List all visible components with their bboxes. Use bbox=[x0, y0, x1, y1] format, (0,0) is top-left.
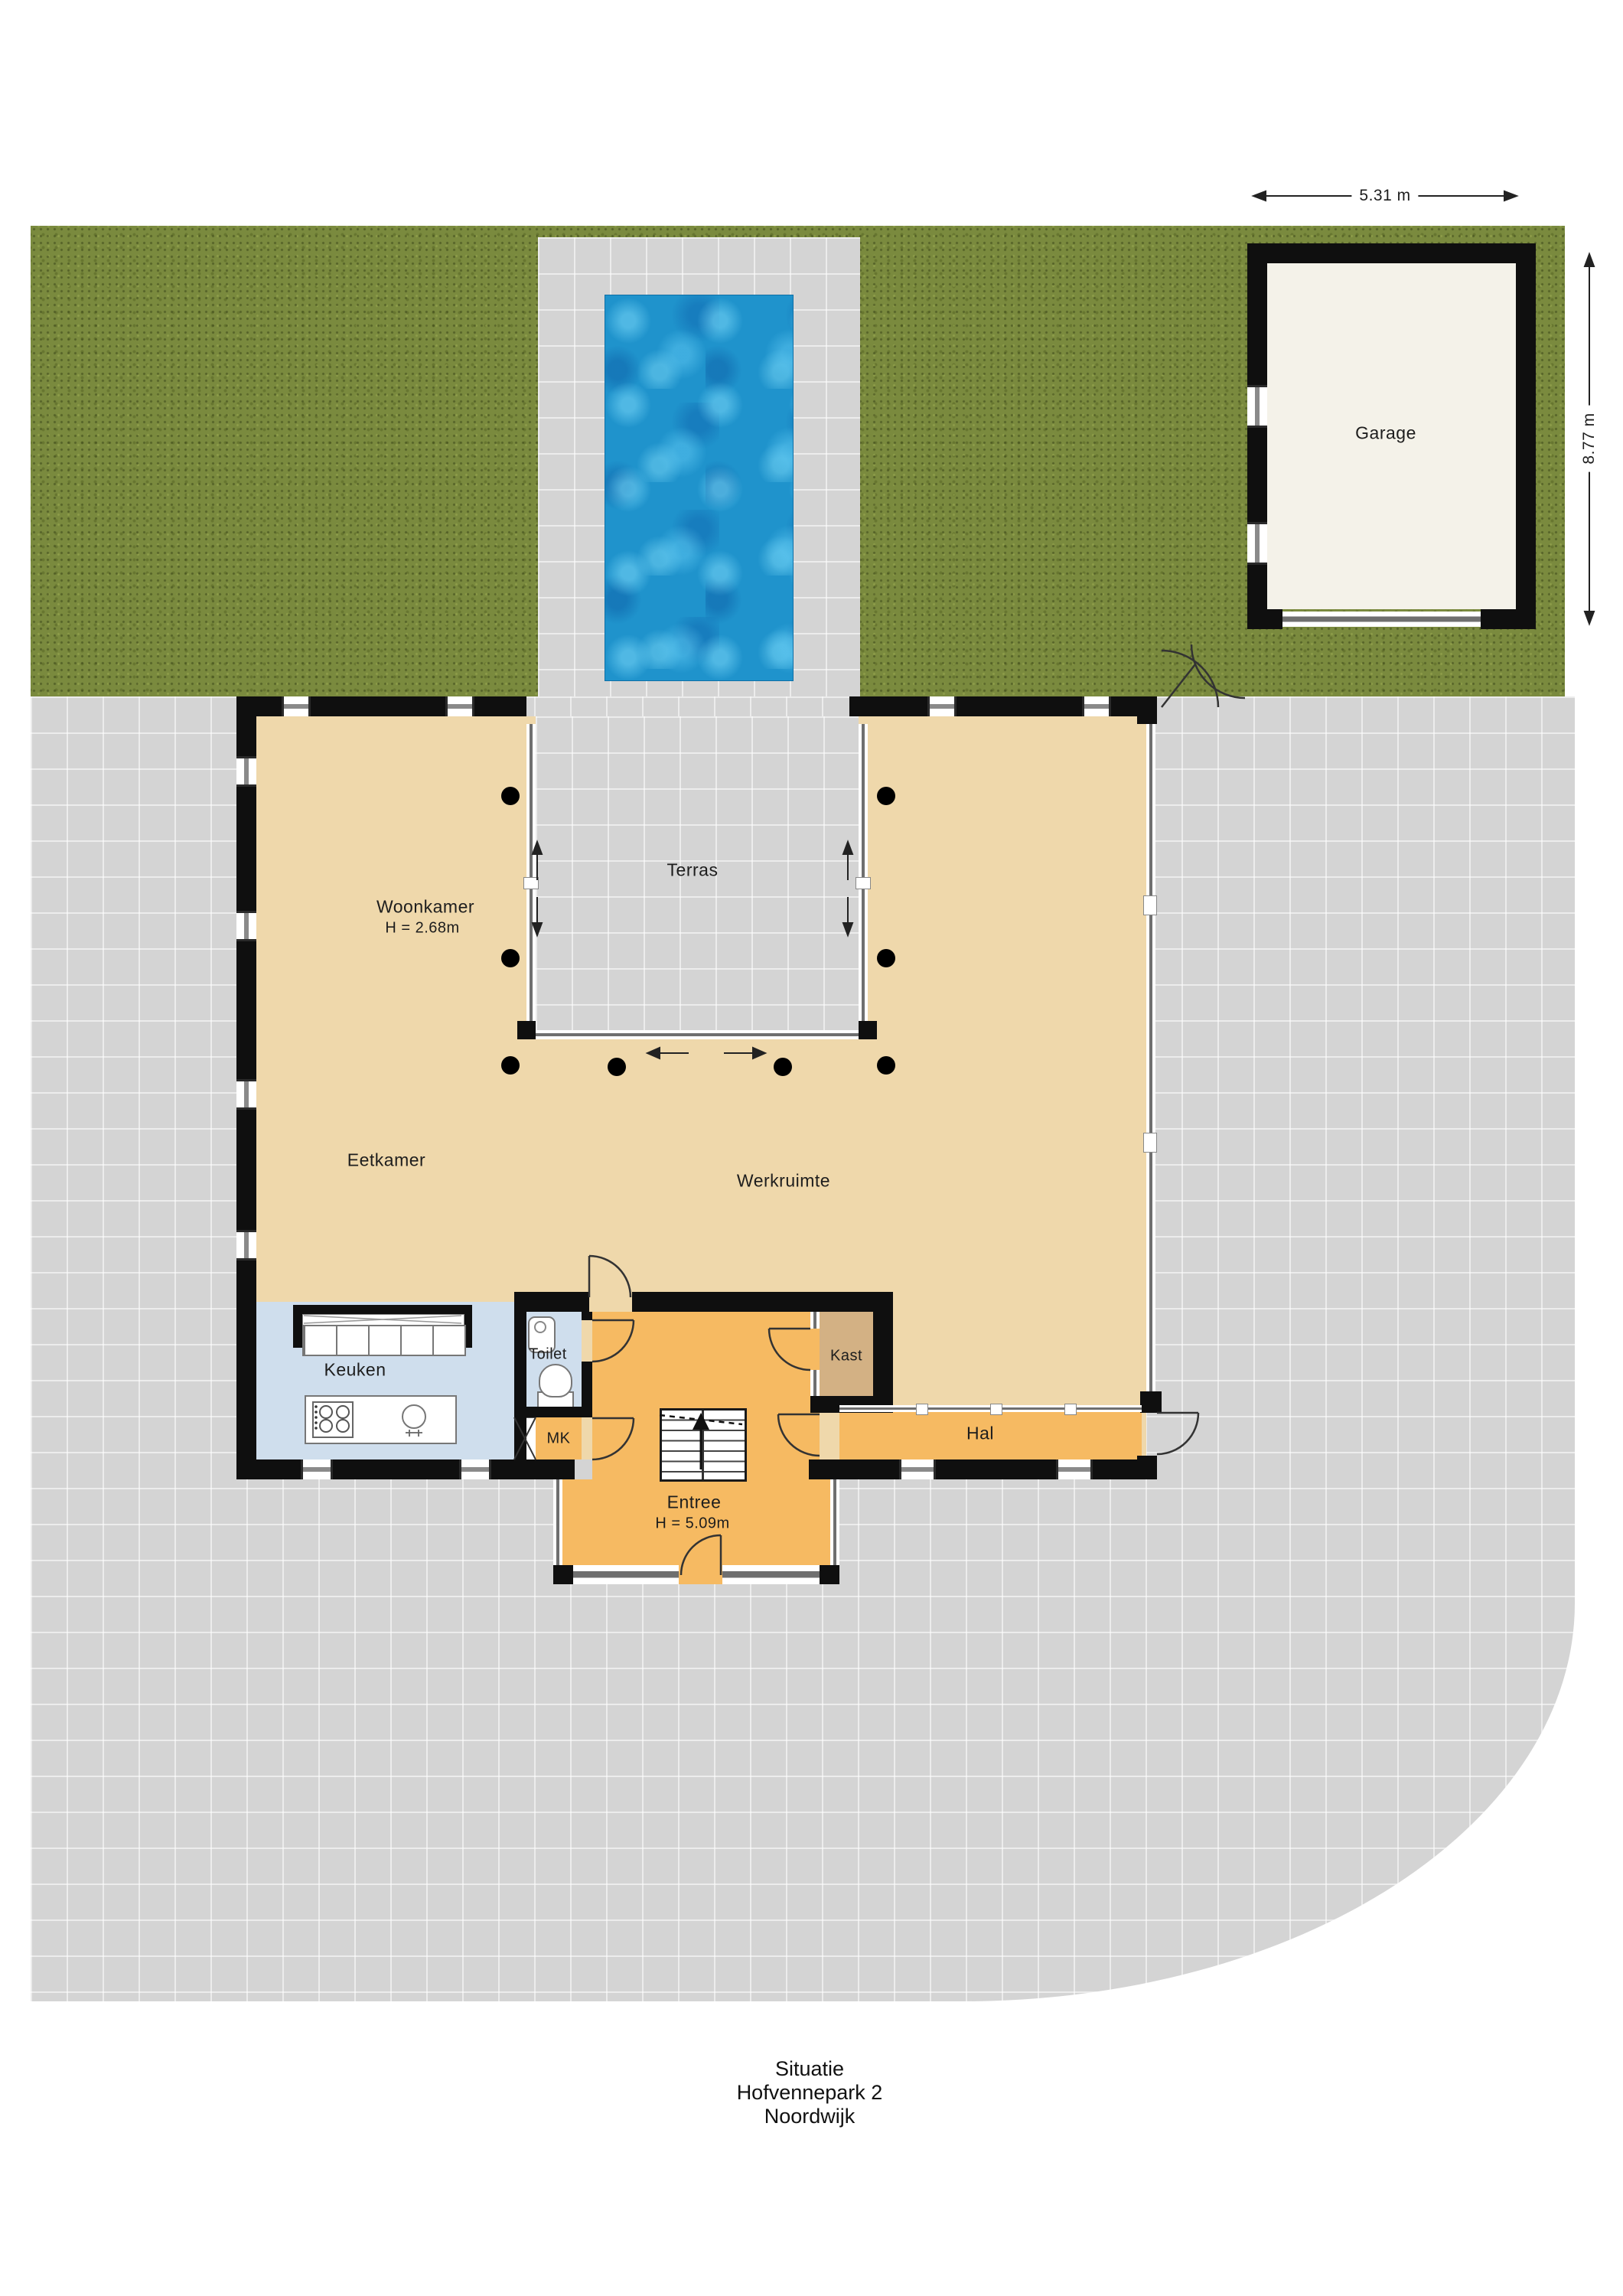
room-label-kast: Kast bbox=[830, 1348, 862, 1365]
wall-entree-left-a bbox=[582, 1312, 592, 1320]
window-left-3 bbox=[236, 1079, 256, 1110]
wall-post-hal-ne bbox=[1140, 1391, 1162, 1413]
swimming-pool bbox=[605, 295, 794, 681]
toilet-bowl bbox=[539, 1364, 572, 1397]
room-label-werkruimte: Werkruimte bbox=[737, 1171, 830, 1192]
kast-glass-left-b bbox=[810, 1370, 820, 1396]
window-hal-2 bbox=[1056, 1459, 1093, 1479]
vestibule-post-nw bbox=[553, 1459, 575, 1479]
garage-wall-bottom-right bbox=[1481, 609, 1536, 629]
garage-wall-right bbox=[1516, 243, 1536, 629]
column-dot-6 bbox=[877, 1056, 895, 1075]
garage-window-2 bbox=[1247, 522, 1267, 565]
cooktop bbox=[312, 1401, 354, 1438]
wall-toilet-mk-divider bbox=[514, 1407, 592, 1417]
room-label-eetkamer: Eetkamer bbox=[347, 1150, 425, 1171]
wall-entree-top-right bbox=[632, 1292, 893, 1312]
room-label-garage: Garage bbox=[1355, 423, 1416, 444]
garage-wall-bottom-left bbox=[1247, 609, 1282, 629]
window-hal-1 bbox=[899, 1459, 936, 1479]
vestibule-post-ne bbox=[818, 1459, 839, 1479]
hal-glass-post-2 bbox=[990, 1404, 1002, 1415]
front-door-opening bbox=[679, 1565, 722, 1584]
room-label-toilet: Toilet bbox=[529, 1346, 567, 1364]
column-dot-2 bbox=[501, 949, 520, 967]
terras-post-ne bbox=[849, 696, 868, 716]
hal-glass-post-3 bbox=[1064, 1404, 1077, 1415]
wall-entree-top-left bbox=[514, 1292, 589, 1312]
room-label-terras: Terras bbox=[667, 860, 719, 881]
vestibule-glass-left bbox=[553, 1479, 562, 1565]
window-top-3 bbox=[927, 696, 957, 716]
garage-sliding-door bbox=[1282, 612, 1481, 627]
glass-right-post-2 bbox=[1143, 1133, 1157, 1153]
wall-bottom-right-section bbox=[809, 1459, 1157, 1479]
staircase bbox=[660, 1408, 747, 1482]
plan-caption: Situatie Hofvennepark 2 Noordwijk bbox=[737, 2057, 883, 2128]
wall-top-right-section bbox=[868, 696, 1157, 716]
dim-label-garage-width: 5.31 m bbox=[1351, 187, 1418, 205]
terras-glass-right-post bbox=[855, 877, 871, 889]
column-dot-8 bbox=[774, 1058, 792, 1076]
glass-right-post-1 bbox=[1143, 895, 1157, 915]
wall-kast-right bbox=[873, 1312, 893, 1396]
window-top-2 bbox=[445, 696, 474, 716]
terras-post-nw bbox=[508, 696, 526, 716]
room-label-hal: Hal bbox=[966, 1424, 994, 1444]
dim-label-garage-depth: 8.77 m bbox=[1580, 405, 1599, 471]
room-label-keuken: Keuken bbox=[324, 1360, 386, 1381]
terras-post-sw bbox=[517, 1021, 536, 1039]
column-dot-4 bbox=[877, 787, 895, 805]
window-left-2 bbox=[236, 911, 256, 941]
caption-line-3: Noordwijk bbox=[737, 2105, 883, 2128]
terras-glass-left-post bbox=[523, 877, 539, 889]
terras-glass-left bbox=[526, 724, 536, 1021]
terras-glass-bottom bbox=[536, 1030, 859, 1039]
terras-post-se bbox=[859, 1021, 877, 1039]
hal-glass-post-1 bbox=[916, 1404, 928, 1415]
wall-bottom-left-section bbox=[236, 1459, 575, 1479]
caption-line-2: Hofvennepark 2 bbox=[737, 2081, 883, 2105]
kitchen-cabinets bbox=[302, 1325, 466, 1356]
wall-top-left-section bbox=[236, 696, 526, 716]
room-label-entree: Entree bbox=[667, 1492, 722, 1513]
kitchen-counter-frame-top bbox=[293, 1305, 472, 1314]
room-label-woonkamer: Woonkamer bbox=[376, 897, 474, 918]
column-dot-1 bbox=[501, 787, 520, 805]
garage-window-1 bbox=[1247, 385, 1267, 428]
window-left-1 bbox=[236, 756, 256, 787]
vestibule-glass-right bbox=[830, 1479, 839, 1565]
garage-wall-left bbox=[1247, 243, 1267, 629]
kast-glass-left-a bbox=[810, 1312, 820, 1329]
floor-plan: Garage Woonkamer H = 2.68m Terras Eetkam… bbox=[0, 0, 1623, 2296]
room-label-entree-height: H = 5.09m bbox=[655, 1515, 729, 1533]
wall-keuken-toilet bbox=[514, 1292, 526, 1459]
glass-wall-right bbox=[1146, 724, 1155, 1405]
column-dot-3 bbox=[501, 1056, 520, 1075]
window-keuken-2 bbox=[459, 1459, 491, 1479]
kitchen-counter-frame-left bbox=[293, 1305, 302, 1348]
window-top-4 bbox=[1082, 696, 1111, 716]
caption-line-1: Situatie bbox=[737, 2057, 883, 2081]
vestibule-post-sw bbox=[553, 1565, 573, 1584]
room-label-woonkamer-height: H = 2.68m bbox=[385, 920, 459, 938]
wall-entree-left-b bbox=[582, 1362, 592, 1417]
garage-wall-top bbox=[1247, 243, 1536, 263]
window-left-4 bbox=[236, 1230, 256, 1261]
room-label-mk: MK bbox=[547, 1430, 571, 1448]
window-keuken-1 bbox=[301, 1459, 333, 1479]
vestibule-post-se bbox=[820, 1565, 839, 1584]
window-top-1 bbox=[282, 696, 311, 716]
wall-corner-post-ne bbox=[1137, 696, 1157, 724]
terras-glass-right bbox=[859, 724, 868, 1021]
column-dot-5 bbox=[877, 949, 895, 967]
column-dot-7 bbox=[608, 1058, 626, 1076]
